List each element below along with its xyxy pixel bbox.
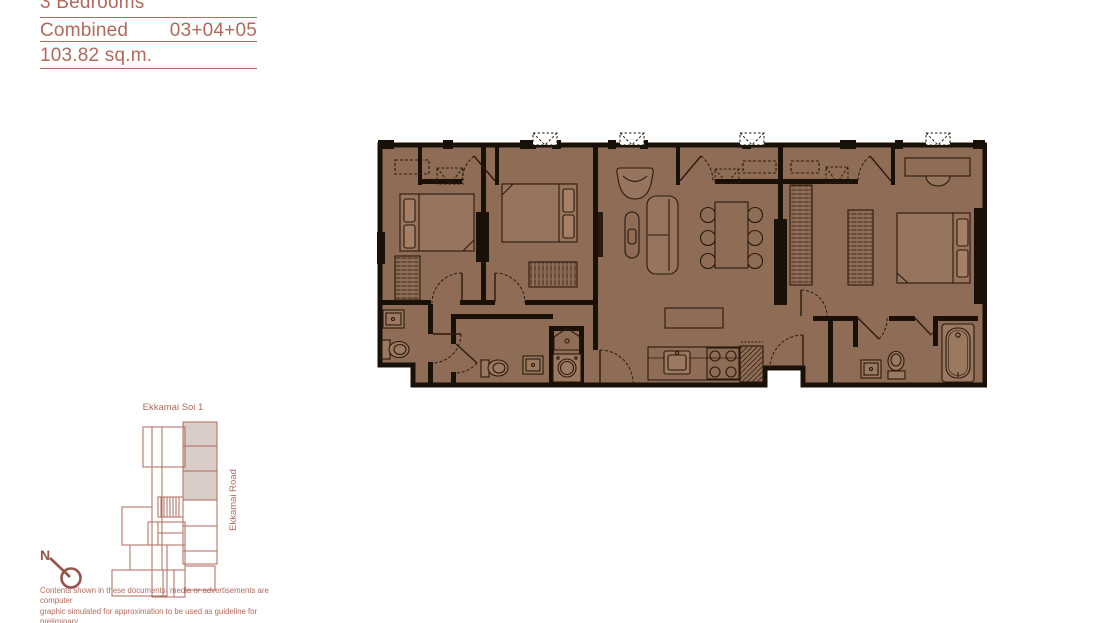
bedroom1-bed [400,194,474,251]
street-label-top: Ekkamai Soi 1 [103,402,243,413]
key-plan [103,416,243,601]
title-rule-1 [40,17,257,18]
highlighted-unit [183,446,217,471]
floor-plan [377,132,987,390]
unit-layout-label: Combined [40,20,128,42]
page: 3 Bedrooms Combined 03+04+05 103.82 sq.m… [0,0,1110,623]
bathtub [942,324,974,382]
disclaimer: Contents shown in these documents, media… [40,586,276,623]
tv [598,212,603,257]
title-rule-3 [40,68,257,69]
disclaimer-line: Contents shown in these documents, media… [40,586,276,607]
bedroom2-dresser [529,262,577,287]
coffee-table [665,308,723,328]
kitchen-counter [648,347,740,380]
title-rule-2 [40,41,257,42]
vent-icon [740,133,764,145]
vent-icon [620,133,644,145]
unit-type-label: 3 Bedrooms [40,0,144,14]
north-label: N [40,547,50,563]
washing-machine [553,354,581,382]
highlighted-units [183,422,217,500]
unit-area-label: 103.82 sq.m. [40,45,152,67]
highlighted-unit [183,471,217,500]
corridor-wardrobe [790,185,812,285]
disclaimer-line: graphic simulated for approximation to b… [40,607,276,623]
unit-combination-row: Combined 03+04+05 [40,20,257,42]
highlighted-unit [183,422,217,446]
master-bed [897,213,970,283]
unit-numbers-label: 03+04+05 [170,20,257,42]
bedroom1-wardrobe [395,256,420,300]
bedroom2-bed [502,184,577,242]
sofa [647,196,678,274]
refrigerator [740,342,763,382]
vent-icon [533,133,557,145]
master-wardrobe [848,210,873,285]
vent-icon [926,133,950,145]
